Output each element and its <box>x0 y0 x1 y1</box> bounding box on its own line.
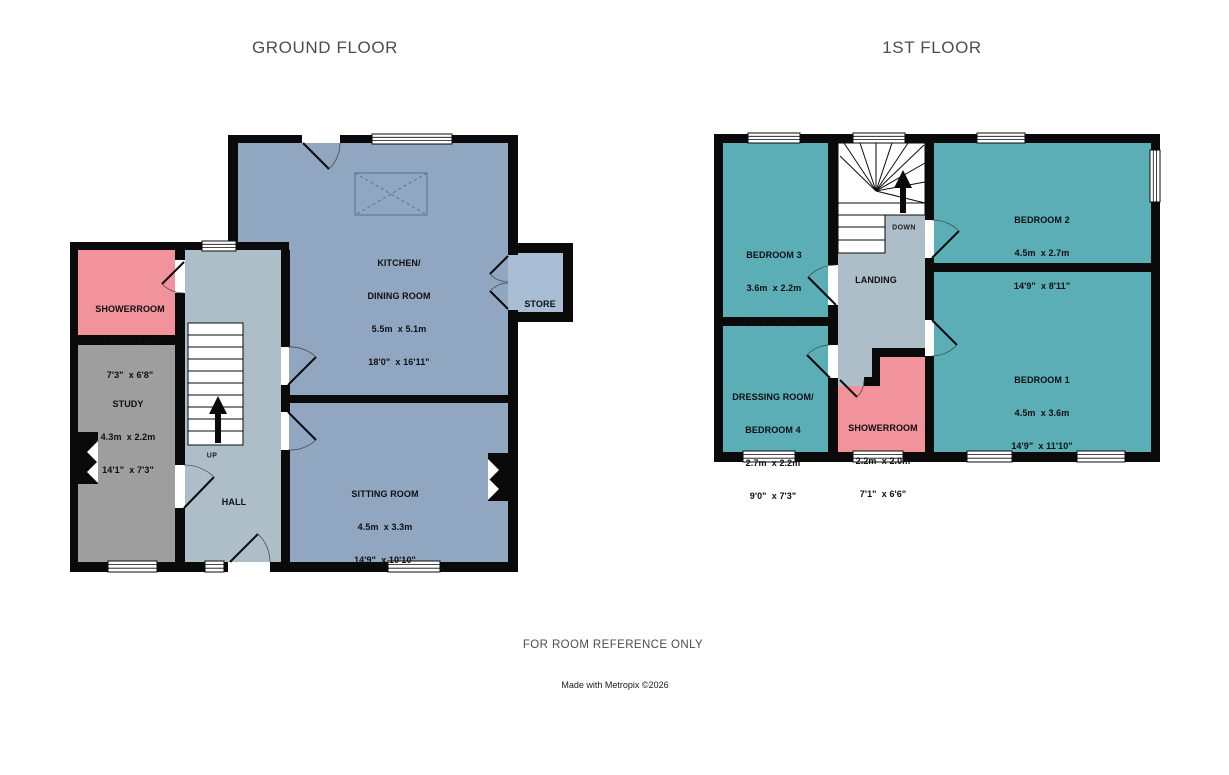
room-name: SHOWERROOM <box>95 304 165 315</box>
room-dim-metric: 4.5m x 2.7m <box>1014 248 1070 259</box>
room-dim-metric: 2.7m x 2.2m <box>732 458 813 469</box>
bedroom-2-top-window <box>977 133 1025 143</box>
room-name: STUDY <box>101 399 156 410</box>
bedroom-1-window-right <box>1077 451 1125 462</box>
room-dim-imperial: 7'1" x 6'6" <box>848 489 918 500</box>
stairs-down-label: DOWN <box>892 225 916 232</box>
room-dim-metric: 4.3m x 2.2m <box>101 432 156 443</box>
room-label-bedroom-2: BEDROOM 2 4.5m x 2.7m 14'9" x 8'11" <box>1014 193 1070 303</box>
room-label-sitting-room: SITTING ROOM 4.5m x 3.3m 14'9" x 10'10" <box>351 467 418 577</box>
ground-floor-title: GROUND FLOOR <box>252 38 398 58</box>
bedroom-3-window <box>748 133 800 143</box>
room-name: BEDROOM 3 <box>746 250 801 261</box>
room-dim-metric: 3.6m x 2.2m <box>746 283 801 294</box>
room-name: SHOWERROOM <box>848 423 918 434</box>
sitting-room-chimney-breast <box>488 453 508 501</box>
room-label-kitchen-dining: KITCHEN/ DINING ROOM 5.5m x 5.1m 18'0" x… <box>367 236 430 379</box>
study-chimney-breast <box>78 432 98 484</box>
bedroom-1-window-left <box>967 451 1012 462</box>
room-label-hall: HALL <box>222 475 246 519</box>
hall-top-window <box>202 241 236 251</box>
first-floor-title: 1ST FLOOR <box>882 38 982 58</box>
room-name: BEDROOM 2 <box>1014 215 1070 226</box>
room-label-landing: LANDING <box>855 253 897 297</box>
credit-line: Made with Metropix ©2026 <box>561 680 668 690</box>
room-dim-metric: 5.5m x 5.1m <box>367 324 430 335</box>
room-name: STORE <box>524 299 555 310</box>
room-label-showerroom-first: SHOWERROOM 2.2m x 2.0m 7'1" x 6'6" <box>848 401 918 511</box>
room-dim-imperial: 14'1" x 7'3" <box>101 465 156 476</box>
front-door-opening <box>228 562 270 572</box>
room-dim-metric: 2.2m x 2.0m <box>95 337 165 348</box>
room-name: LANDING <box>855 275 897 286</box>
room-name: KITCHEN/ <box>367 258 430 269</box>
study-window <box>108 561 157 572</box>
footer-note: FOR ROOM REFERENCE ONLY <box>523 639 703 651</box>
room-name-2: BEDROOM 4 <box>732 425 813 436</box>
room-label-store: STORE <box>524 277 555 321</box>
floorplan-page: GROUND FLOOR 1ST FLOOR KITCHEN/ DINING R… <box>0 0 1229 775</box>
room-dim-imperial: 18'0" x 16'11" <box>367 357 430 368</box>
room-dim-metric: 2.2m x 2.0m <box>848 456 918 467</box>
room-dim-metric: 4.5m x 3.6m <box>1011 408 1072 419</box>
room-name: SITTING ROOM <box>351 489 418 500</box>
room-label-study: STUDY 4.3m x 2.2m 14'1" x 7'3" <box>101 377 156 487</box>
room-label-bedroom-3: BEDROOM 3 3.6m x 2.2m 11'9" x 7'3" <box>746 228 801 338</box>
room-name-2: DINING ROOM <box>367 291 430 302</box>
room-label-bedroom-1: BEDROOM 1 4.5m x 3.6m 14'9" x 11'10" <box>1011 353 1072 463</box>
stairwell-window <box>853 133 905 143</box>
room-dim-metric: 4.5m x 3.3m <box>351 522 418 533</box>
staircase-up <box>188 323 243 445</box>
room-name: DRESSING ROOM/ <box>732 392 813 403</box>
bedroom-2-side-window <box>1150 150 1160 202</box>
room-dim-imperial: 14'9" x 11'10" <box>1011 441 1072 452</box>
room-name: BEDROOM 1 <box>1011 375 1072 386</box>
room-dim-imperial: 11'9" x 7'3" <box>746 316 801 327</box>
hall-bottom-window <box>205 561 224 572</box>
kitchen-window <box>372 134 452 144</box>
room-name: HALL <box>222 497 246 508</box>
room-label-showerroom-ground: SHOWERROOM 2.2m x 2.0m 7'3" x 6'8" <box>95 282 165 392</box>
room-dim-imperial: 9'0" x 7'3" <box>732 491 813 502</box>
room-dim-imperial: 14'9" x 10'10" <box>351 555 418 566</box>
room-label-dressing-room: DRESSING ROOM/ BEDROOM 4 2.7m x 2.2m 9'0… <box>732 370 813 513</box>
room-dim-imperial: 14'9" x 8'11" <box>1014 281 1070 292</box>
stairs-up-label: UP <box>207 453 218 460</box>
